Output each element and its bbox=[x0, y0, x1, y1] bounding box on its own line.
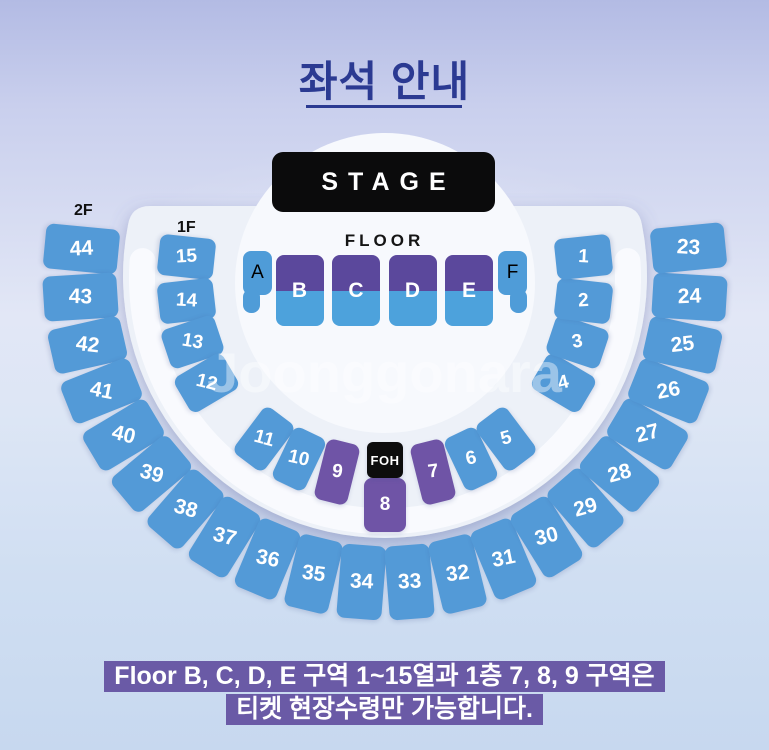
section-41-label: 41 bbox=[88, 377, 116, 405]
section-11-label: 11 bbox=[251, 425, 276, 452]
floor-section-A-label: A bbox=[251, 262, 264, 284]
section-9-label: 9 bbox=[330, 460, 343, 483]
section-4-label: 4 bbox=[556, 371, 572, 395]
floor-section-D-label: D bbox=[405, 279, 420, 303]
section-34-label: 34 bbox=[349, 570, 373, 595]
stage-box: STAGE bbox=[272, 152, 495, 212]
floor-section-A: A bbox=[243, 251, 272, 313]
floor-section-E-label: E bbox=[462, 279, 476, 303]
section-39-label: 39 bbox=[137, 459, 166, 488]
section-43: 43 bbox=[42, 272, 119, 322]
floor-section-A-tail bbox=[243, 289, 260, 313]
section-2: 2 bbox=[554, 277, 614, 324]
section-40-label: 40 bbox=[109, 420, 138, 449]
section-28-label: 28 bbox=[605, 459, 634, 488]
section-23: 23 bbox=[649, 222, 727, 274]
section-33: 33 bbox=[384, 543, 435, 620]
floor-section-F: F bbox=[498, 251, 527, 313]
section-10-label: 10 bbox=[286, 445, 311, 471]
section-44-label: 44 bbox=[69, 236, 94, 261]
section-24-label: 24 bbox=[677, 284, 701, 309]
section-25-label: 25 bbox=[670, 331, 696, 358]
floor-section-B-label: B bbox=[292, 279, 307, 303]
section-29-label: 29 bbox=[571, 493, 600, 522]
floor-section-B: B bbox=[276, 255, 324, 326]
section-24: 24 bbox=[651, 272, 728, 321]
section-26-label: 26 bbox=[655, 377, 683, 405]
foh-booth: FOH bbox=[367, 442, 403, 478]
section-35-label: 35 bbox=[300, 561, 326, 588]
section-8-label: 8 bbox=[380, 494, 391, 516]
section-14-label: 14 bbox=[175, 289, 197, 312]
floor-section-F-tail bbox=[510, 289, 527, 313]
section-38-label: 38 bbox=[171, 494, 200, 523]
stage-label: STAGE bbox=[321, 168, 455, 197]
section-1-label: 1 bbox=[578, 246, 590, 269]
section-32-label: 32 bbox=[444, 561, 470, 588]
section-31-label: 31 bbox=[489, 545, 517, 573]
floor-section-C-label: C bbox=[348, 279, 363, 303]
section-37-label: 37 bbox=[210, 523, 239, 552]
floor-section-E: E bbox=[445, 255, 493, 326]
level-label-1f: 1F bbox=[177, 219, 196, 237]
section-42-label: 42 bbox=[74, 332, 100, 359]
section-15-label: 15 bbox=[175, 245, 197, 268]
section-27-label: 27 bbox=[633, 420, 662, 449]
section-3-label: 3 bbox=[570, 331, 584, 354]
section-8: 8 bbox=[364, 478, 406, 532]
section-13-label: 13 bbox=[180, 330, 205, 355]
section-5-label: 5 bbox=[498, 426, 514, 450]
notice: Floor B, C, D, E 구역 1~15열과 1층 7, 8, 9 구역… bbox=[0, 661, 769, 725]
section-1: 1 bbox=[554, 234, 614, 281]
notice-line-1: Floor B, C, D, E 구역 1~15열과 1층 7, 8, 9 구역… bbox=[104, 661, 664, 692]
section-43-label: 43 bbox=[69, 285, 93, 310]
section-12-label: 12 bbox=[194, 370, 220, 396]
floor-section-F-label: F bbox=[507, 262, 519, 284]
section-36-label: 36 bbox=[253, 545, 281, 573]
section-33-label: 33 bbox=[397, 569, 421, 594]
section-30-label: 30 bbox=[532, 522, 561, 551]
notice-line-2: 티켓 현장수령만 가능합니다. bbox=[226, 694, 543, 725]
floor-section-D: D bbox=[389, 255, 437, 326]
section-6-label: 6 bbox=[464, 447, 479, 471]
section-7-label: 7 bbox=[427, 460, 440, 483]
section-34: 34 bbox=[336, 543, 387, 620]
section-23-label: 23 bbox=[676, 236, 701, 261]
section-15: 15 bbox=[156, 234, 216, 281]
seat-guide-image: 좌석 안내 STAGE FLOOR 2F 1F ABCDEF 444342414… bbox=[0, 0, 769, 750]
level-label-2f: 2F bbox=[74, 202, 93, 220]
section-44: 44 bbox=[42, 223, 120, 275]
section-2-label: 2 bbox=[578, 289, 590, 312]
foh-booth-label: FOH bbox=[371, 453, 400, 468]
floor-section-C: C bbox=[332, 255, 380, 326]
